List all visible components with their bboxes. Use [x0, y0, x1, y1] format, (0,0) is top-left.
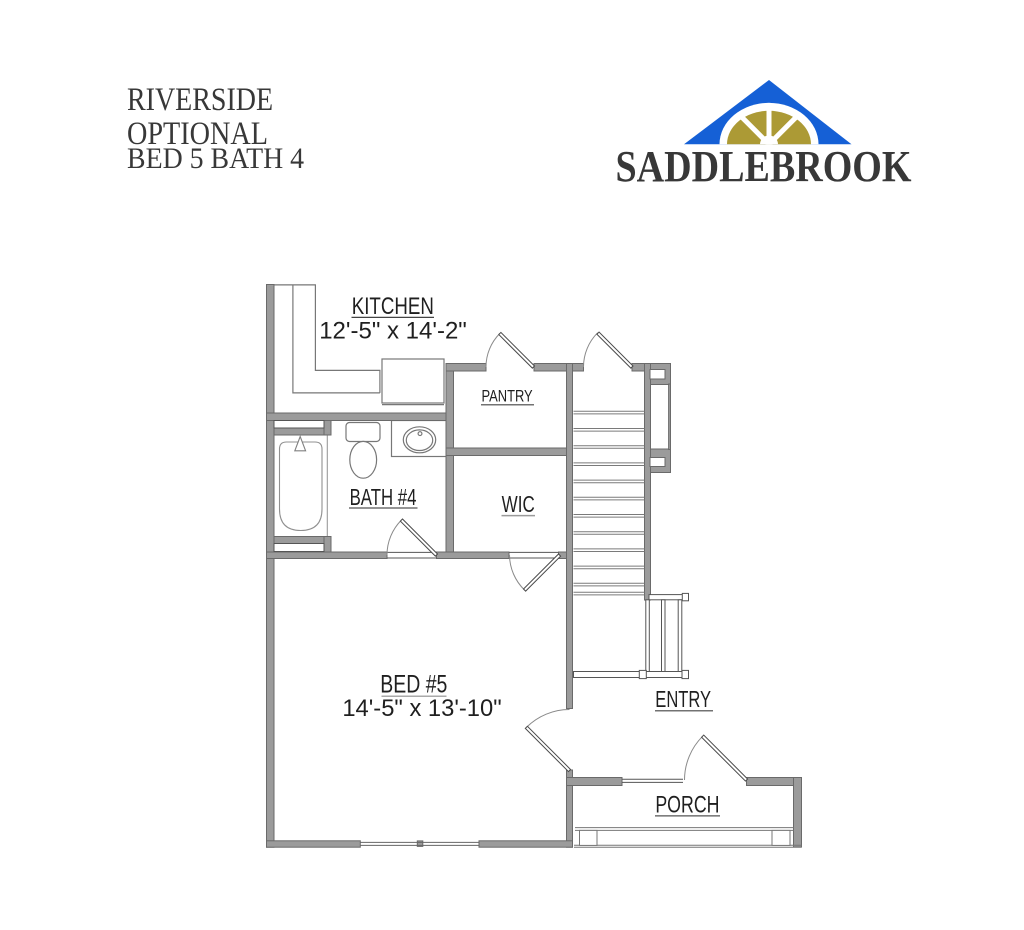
svg-text:14'-5" x 13'-10": 14'-5" x 13'-10": [342, 695, 501, 722]
svg-text:PORCH: PORCH: [655, 792, 719, 818]
svg-text:KITCHEN: KITCHEN: [352, 293, 434, 320]
svg-text:SADDLEBROOK: SADDLEBROOK: [615, 141, 911, 190]
svg-text:BED 5 BATH 4: BED 5 BATH 4: [127, 142, 305, 175]
svg-text:BED #5: BED #5: [380, 670, 447, 698]
svg-text:PANTRY: PANTRY: [482, 387, 533, 406]
svg-text:WIC: WIC: [502, 492, 535, 517]
svg-text:ENTRY: ENTRY: [655, 687, 711, 712]
svg-text:RIVERSIDE: RIVERSIDE: [127, 81, 273, 118]
svg-text:12'-5" x 14'-2": 12'-5" x 14'-2": [319, 318, 467, 345]
svg-text:BATH #4: BATH #4: [350, 485, 417, 510]
